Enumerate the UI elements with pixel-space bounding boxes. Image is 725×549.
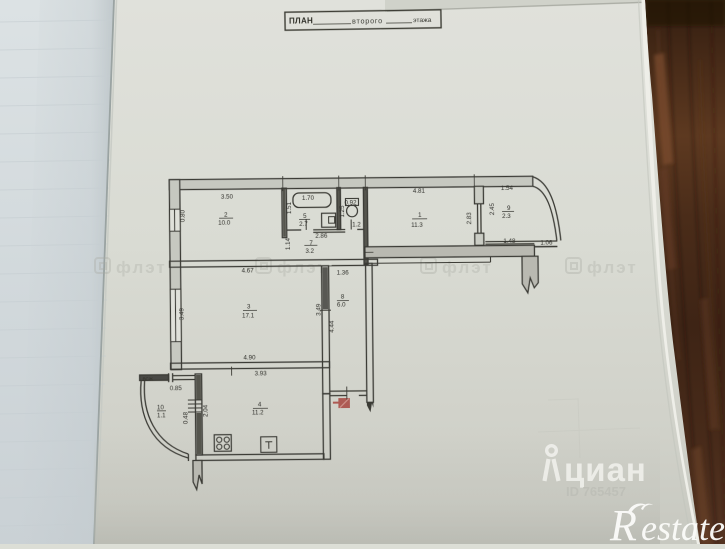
svg-text:4.90: 4.90 — [243, 354, 256, 361]
svg-text:2.3: 2.3 — [502, 213, 511, 220]
svg-text:флэт: флэт — [116, 258, 167, 277]
svg-text:4: 4 — [258, 401, 262, 408]
svg-text:2: 2 — [224, 212, 228, 219]
svg-text:0.92: 0.92 — [344, 199, 357, 206]
svg-text:1: 1 — [418, 212, 422, 219]
svg-text:1.2: 1.2 — [352, 221, 361, 228]
svg-text:флэт: флэт — [587, 258, 638, 277]
svg-text:ВСЖ: ВСЖ — [143, 376, 154, 381]
svg-text:1.70: 1.70 — [302, 195, 315, 202]
svg-text:1.06: 1.06 — [540, 240, 553, 247]
svg-text:9: 9 — [507, 205, 511, 212]
svg-text:3: 3 — [247, 303, 251, 310]
svg-text:10: 10 — [157, 404, 165, 411]
svg-text:7: 7 — [309, 240, 313, 247]
svg-text:11.2: 11.2 — [252, 409, 264, 416]
svg-text:1.54: 1.54 — [501, 185, 514, 192]
svg-text:5: 5 — [303, 213, 307, 220]
svg-text:8: 8 — [341, 294, 345, 301]
svg-text:6.0: 6.0 — [337, 302, 346, 309]
svg-text:estate: estate — [641, 508, 725, 544]
svg-text:0.85: 0.85 — [170, 385, 183, 392]
svg-text:2.45: 2.45 — [489, 202, 496, 215]
svg-text:1.36: 1.36 — [337, 270, 350, 277]
svg-text:3.49: 3.49 — [178, 307, 185, 320]
svg-text:0.80: 0.80 — [180, 209, 187, 222]
svg-text:3.2: 3.2 — [305, 248, 314, 255]
svg-text:2.7: 2.7 — [299, 221, 308, 228]
svg-text:1.1: 1.1 — [157, 412, 166, 419]
svg-text:1.48: 1.48 — [503, 238, 516, 245]
svg-text:3.93: 3.93 — [255, 370, 268, 377]
svg-text:флэт: флэт — [442, 258, 493, 277]
svg-text:11.3: 11.3 — [411, 222, 423, 229]
svg-text:2.04: 2.04 — [202, 404, 209, 417]
svg-text:2.83: 2.83 — [466, 212, 473, 225]
svg-text:3.49: 3.49 — [315, 303, 322, 316]
svg-text:2.86: 2.86 — [315, 233, 328, 240]
svg-text:4.81: 4.81 — [413, 188, 426, 195]
svg-text:циан: циан — [564, 451, 647, 488]
svg-text:ПЛАН: ПЛАН — [289, 16, 313, 25]
svg-text:4.44: 4.44 — [329, 320, 336, 333]
svg-text:флэт: флэт — [277, 258, 328, 277]
svg-text:1.14: 1.14 — [285, 237, 292, 250]
svg-text:10.0: 10.0 — [218, 220, 231, 227]
svg-text:второго: второго — [352, 16, 383, 25]
svg-text:этажа: этажа — [413, 17, 432, 24]
svg-text:ID 765457: ID 765457 — [566, 484, 626, 499]
svg-text:0.48: 0.48 — [182, 411, 189, 424]
svg-text:4.67: 4.67 — [242, 267, 255, 274]
svg-text:1.51: 1.51 — [286, 201, 293, 214]
svg-text:3.50: 3.50 — [221, 194, 234, 201]
svg-text:1.25: 1.25 — [339, 205, 346, 218]
svg-text:17.1: 17.1 — [242, 312, 255, 319]
